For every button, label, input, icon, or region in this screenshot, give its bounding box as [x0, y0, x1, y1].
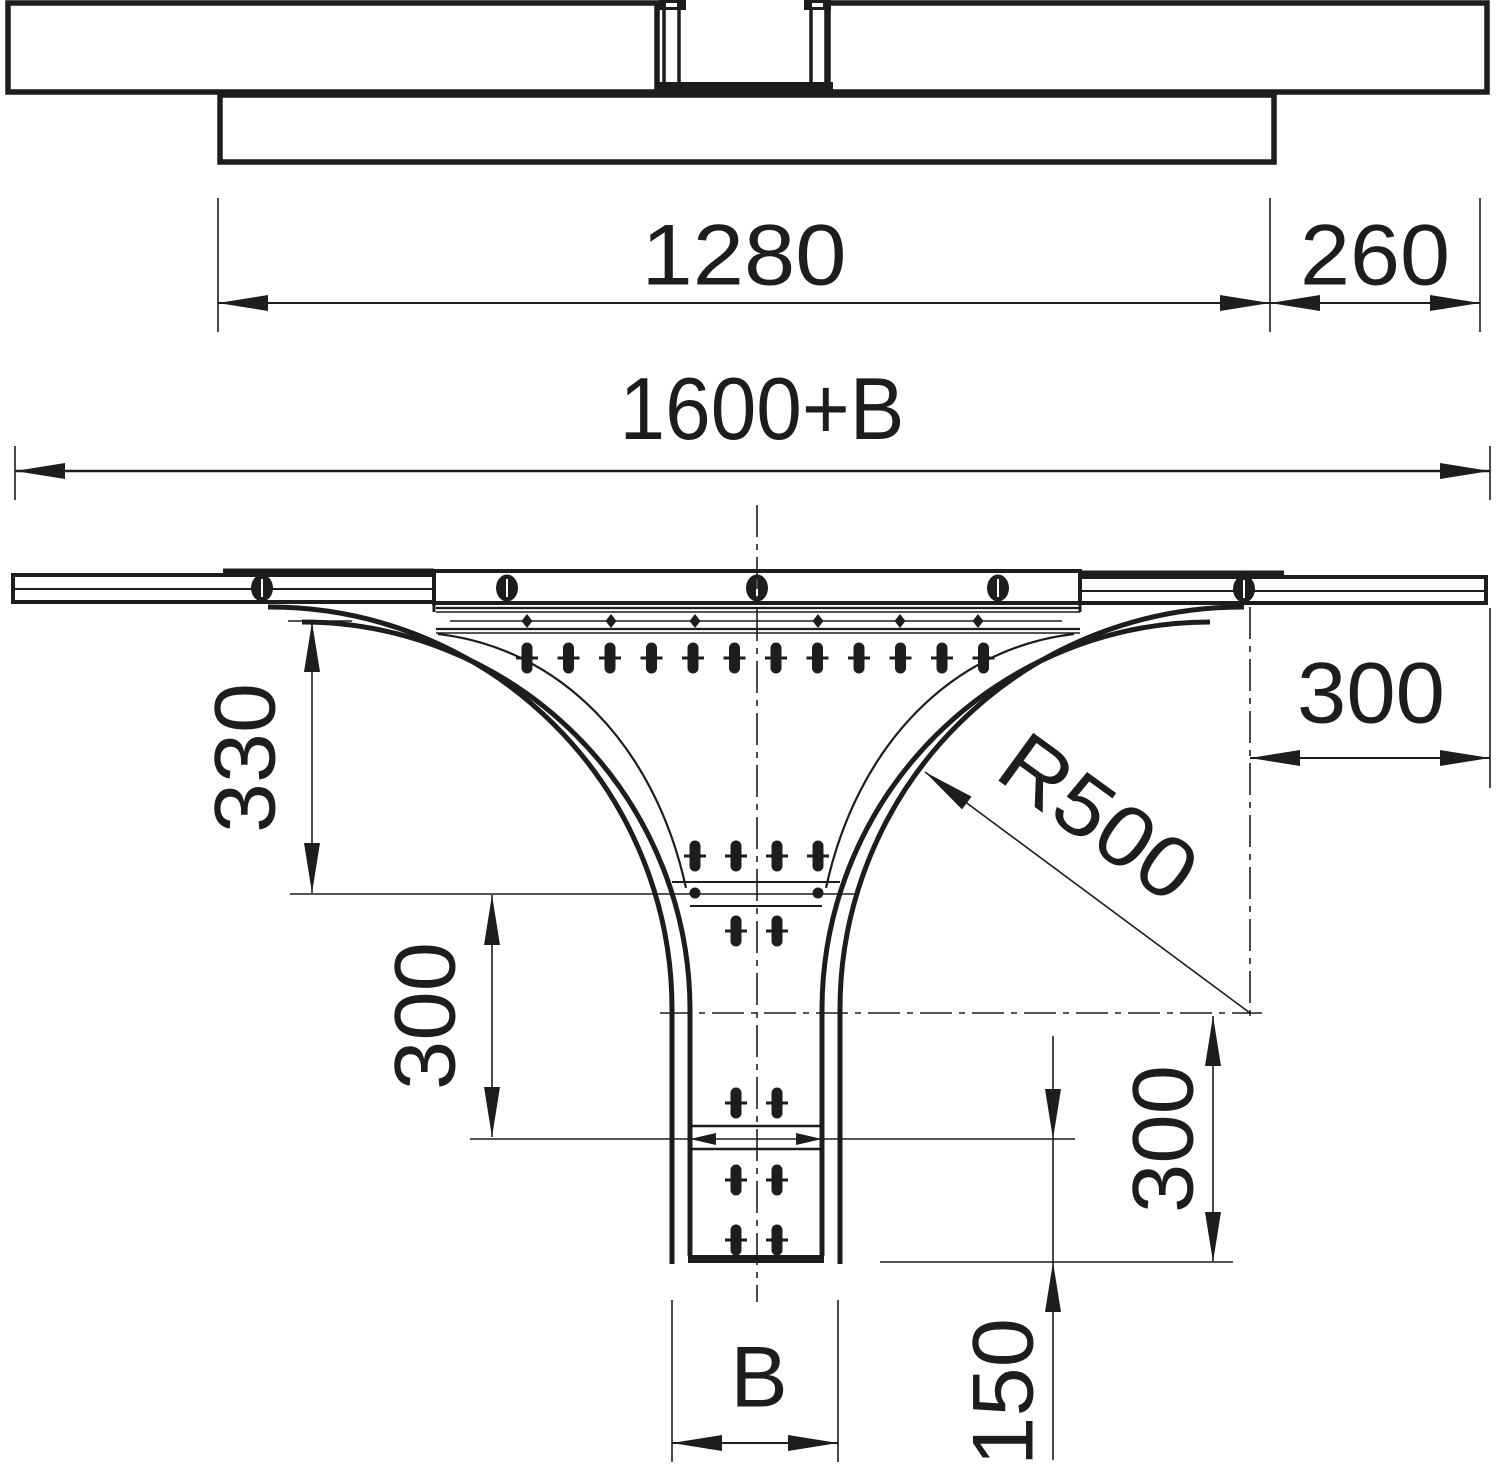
dimension-1280: 1280 — [218, 198, 1270, 332]
technical-drawing: 1280 260 1600+B — [0, 0, 1500, 1466]
arrowhead — [304, 622, 320, 672]
dimension-1600-plus-B: 1600+B — [15, 359, 1490, 500]
arrowhead — [1205, 1016, 1221, 1066]
plan-view: 330 300 R500 300 — [13, 505, 1490, 1466]
dimension-300-lower-right: 300 — [1115, 1016, 1221, 1262]
diamond-perforation — [813, 614, 824, 628]
arrowhead — [690, 1133, 716, 1145]
dim-300-right-label: 300 — [1297, 645, 1445, 741]
perforated-strip — [436, 608, 1080, 633]
dim-1280-label: 1280 — [642, 207, 847, 303]
arrowhead — [1205, 1212, 1221, 1262]
dim-330-label: 330 — [197, 683, 293, 833]
side-rail-right — [828, 3, 1487, 92]
diamond-perforation — [606, 614, 617, 628]
arrowhead — [1440, 750, 1490, 766]
diamond-perforation — [690, 614, 701, 628]
technical-drawing-page: 1280 260 1600+B — [0, 0, 1500, 1466]
dim-260-label: 260 — [1300, 207, 1450, 303]
dim-1600B-label: 1600+B — [620, 359, 905, 458]
dimension-B: B — [672, 1300, 838, 1462]
arrowhead — [484, 1087, 500, 1137]
tray-rail-right — [1080, 573, 1486, 605]
dimension-r500: R500 — [925, 714, 1250, 1013]
dim-r500-label: R500 — [981, 714, 1215, 921]
dimension-300-left: 300 — [377, 895, 500, 1137]
arrowhead — [304, 843, 320, 893]
arrowhead — [925, 772, 972, 809]
flare-left — [268, 607, 690, 1010]
arrowhead — [1440, 463, 1490, 479]
dimension-260: 260 — [1270, 198, 1480, 332]
arrowhead — [484, 895, 500, 945]
dim-150-label: 150 — [955, 1318, 1051, 1466]
side-rail-left — [8, 3, 657, 92]
tee-plate-side — [220, 95, 1274, 162]
branch-trunk — [672, 882, 840, 1264]
rivet — [813, 888, 824, 899]
branch-channel-section — [657, 0, 833, 95]
dimension-300-top-right: 300 — [1250, 608, 1490, 788]
rivet — [690, 888, 701, 899]
trunk-end-edge — [688, 1255, 824, 1263]
arrowhead — [672, 1435, 722, 1451]
insert-width-marks — [470, 1133, 1075, 1145]
tray-rail-left — [13, 571, 434, 604]
arrowhead — [796, 1133, 822, 1145]
arrowhead — [788, 1435, 838, 1451]
dim-300-lower-label: 300 — [1115, 1065, 1211, 1213]
arrowhead — [218, 295, 268, 311]
arrowhead — [15, 463, 65, 479]
dim-300-left-label: 300 — [377, 942, 473, 1090]
slot-perforations — [516, 643, 995, 1256]
side-view — [8, 0, 1487, 162]
arrowhead — [1250, 750, 1300, 766]
diamond-perforation — [522, 614, 533, 628]
arrowhead — [1045, 1089, 1061, 1139]
dimension-330: 330 — [197, 621, 352, 893]
diamond-perforation — [895, 614, 906, 628]
dim-B-label: B — [730, 1329, 787, 1425]
arrowhead — [1045, 1262, 1061, 1312]
arrowhead — [1220, 295, 1270, 311]
diamond-perforation — [973, 614, 984, 628]
